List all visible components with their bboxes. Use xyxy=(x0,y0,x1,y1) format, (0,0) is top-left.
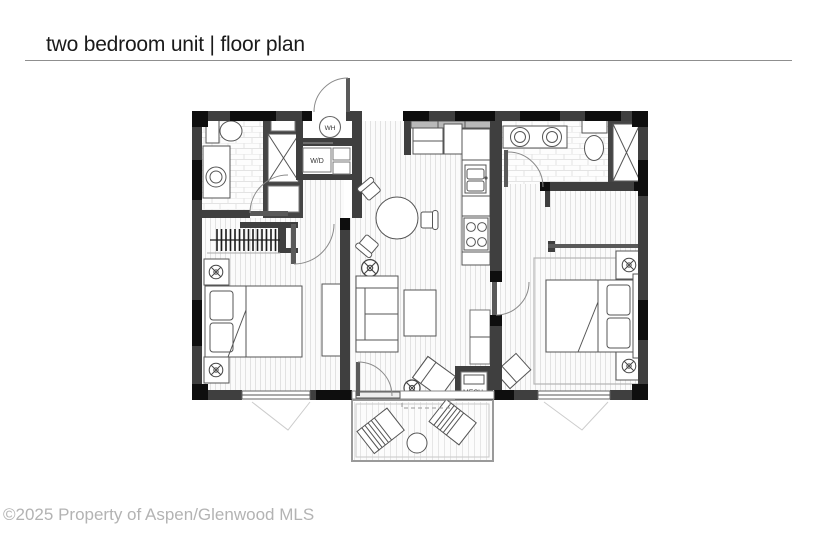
deck-door xyxy=(356,362,360,396)
water-heater-label: WH xyxy=(325,125,336,132)
deck-side-table xyxy=(407,433,427,453)
sliding-door-panel xyxy=(356,392,400,398)
pillow xyxy=(607,318,630,348)
sink xyxy=(206,167,226,187)
pillow xyxy=(210,323,233,352)
coffee-table xyxy=(404,290,436,336)
table-lamp xyxy=(209,265,223,279)
dining-table xyxy=(376,197,418,239)
bathroom-door xyxy=(250,211,288,216)
utility-cabinet xyxy=(333,148,350,160)
dresser xyxy=(322,284,342,356)
floor-plan-svg: WH W/D xyxy=(0,0,840,543)
toilet-bowl xyxy=(220,121,242,141)
kitchen-cabinet xyxy=(444,124,462,154)
toilet-tank xyxy=(582,120,607,133)
washer-dryer-label: W/D xyxy=(310,158,324,165)
sink xyxy=(543,128,562,147)
sink xyxy=(511,128,530,147)
shower-tray xyxy=(268,186,299,212)
left-bedroom-door xyxy=(291,224,296,264)
watermark: ©2025 Property of Aspen/Glenwood MLS xyxy=(3,505,314,525)
right-bedroom-door xyxy=(492,282,497,315)
entry-door xyxy=(346,78,350,112)
toilet-bowl xyxy=(585,136,604,161)
pillow xyxy=(210,291,233,320)
floor-plan-page: two bedroom unit | floor plan xyxy=(0,0,840,543)
table-lamp xyxy=(622,359,636,373)
dining-chair xyxy=(421,211,438,230)
right-bathroom-door xyxy=(504,150,508,187)
table-lamp xyxy=(209,363,223,377)
utility-cabinet xyxy=(333,162,350,174)
closet-wall xyxy=(548,244,640,248)
table-lamp xyxy=(622,258,636,272)
pillow xyxy=(607,285,630,315)
floor-lamp xyxy=(362,260,379,277)
hall-floor xyxy=(296,180,344,218)
